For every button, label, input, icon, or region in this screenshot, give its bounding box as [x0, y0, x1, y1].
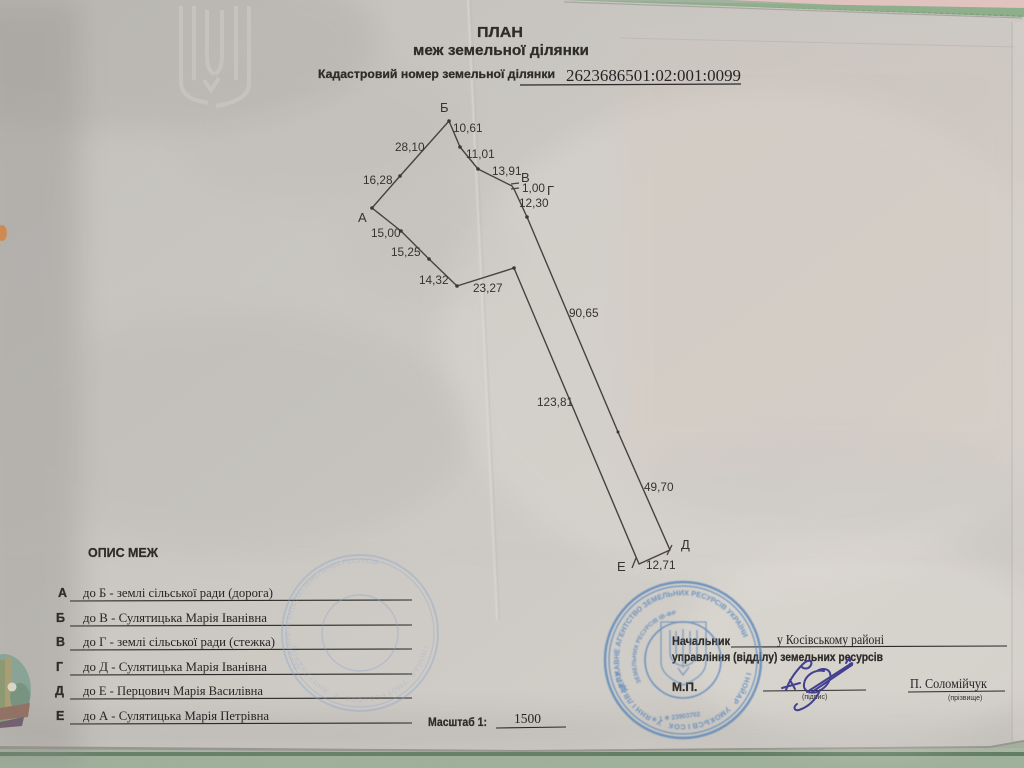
svg-text:С: С: [357, 696, 362, 703]
svg-text:до Б - землі сільської ради: до Б - землі сільської ради (дорога): [83, 585, 273, 600]
svg-text:ОПИС МЕЖ: ОПИС МЕЖ: [88, 545, 158, 560]
svg-text:Масштаб 1:: Масштаб 1:: [428, 715, 487, 729]
svg-text:12,30: 12,30: [519, 196, 549, 210]
svg-text:ПЛАН: ПЛАН: [477, 24, 523, 41]
svg-text:О: О: [673, 722, 680, 732]
svg-text:1,00: 1,00: [522, 181, 545, 195]
svg-text:Е: Е: [617, 559, 626, 574]
svg-text:Д: Д: [55, 684, 64, 698]
svg-text:23,27: 23,27: [473, 281, 503, 295]
svg-text:Б: Б: [56, 611, 65, 625]
svg-text:90,65: 90,65: [569, 306, 599, 320]
svg-text:П. Соломійчук: П. Соломійчук: [910, 676, 987, 691]
svg-text:16,28: 16,28: [363, 173, 393, 187]
svg-text:до Д - Сулятицька Марія Ів: до Д - Сулятицька Марія Іванівна: [83, 659, 267, 674]
svg-text:до Г - землі сільської ради: до Г - землі сільської ради (стежка): [83, 634, 275, 649]
svg-text:15,00: 15,00: [371, 226, 401, 240]
svg-text:123,81: 123,81: [537, 395, 573, 409]
svg-text:49,70: 49,70: [644, 480, 674, 494]
svg-text:управління (відділу) земельних: управління (відділу) земельних ресурсів: [672, 650, 883, 664]
svg-text:12,71: 12,71: [646, 558, 676, 572]
svg-text:А: А: [58, 586, 67, 600]
svg-text:10,61: 10,61: [453, 121, 483, 135]
svg-text:до А - Сулятицька Марія Пе: до А - Сулятицька Марія Петрівна: [83, 708, 269, 723]
svg-text:Кадастровий номер земельної ді: Кадастровий номер земельної ділянки: [318, 67, 555, 81]
svg-text:меж земельної ділянки: меж земельної ділянки: [413, 43, 589, 59]
svg-text:Г: Г: [56, 660, 63, 674]
svg-text:Б: Б: [440, 100, 449, 115]
svg-text:В: В: [56, 635, 65, 649]
svg-text:Д: Д: [681, 537, 690, 552]
svg-text:(прізвище): (прізвище): [948, 694, 982, 702]
svg-text:С: С: [680, 723, 686, 732]
svg-text:14,32: 14,32: [419, 273, 449, 287]
svg-text:до В - Сулятицька Марія Іва: до В - Сулятицька Марія Іванівна: [83, 610, 267, 625]
svg-text:13,91: 13,91: [492, 164, 522, 178]
svg-text:Е: Е: [56, 709, 64, 723]
svg-text:28,10: 28,10: [395, 140, 425, 154]
svg-text:до Е - Перцович Марія Васи: до Е - Перцович Марія Василівна: [83, 683, 263, 698]
svg-text:1500: 1500: [514, 711, 541, 726]
svg-text:Начальник: Начальник: [672, 634, 731, 648]
svg-text:у Косівському районі: у Косівському районі: [777, 632, 884, 647]
svg-text:11,01: 11,01: [466, 147, 495, 161]
svg-text:А: А: [358, 210, 367, 225]
svg-text:2623686501:02:001:0099: 2623686501:02:001:0099: [566, 66, 741, 85]
svg-text:15,25: 15,25: [391, 245, 421, 259]
